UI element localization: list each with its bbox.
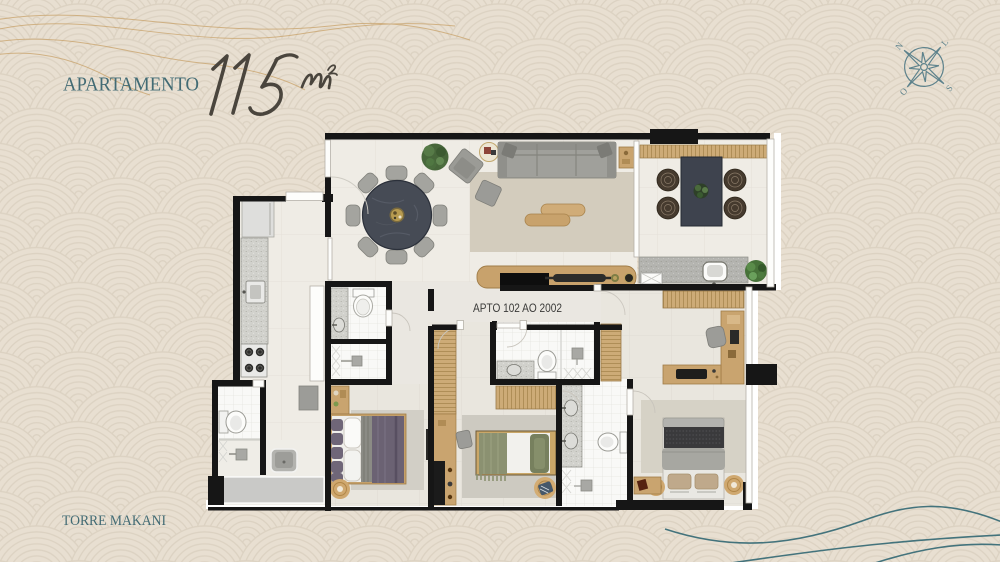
svg-text:APARTAMENTO: APARTAMENTO	[63, 75, 199, 96]
svg-text:TORRE MAKANI: TORRE MAKANI	[62, 513, 166, 529]
svg-text:APTO 102 AO 2002: APTO 102 AO 2002	[473, 303, 562, 315]
